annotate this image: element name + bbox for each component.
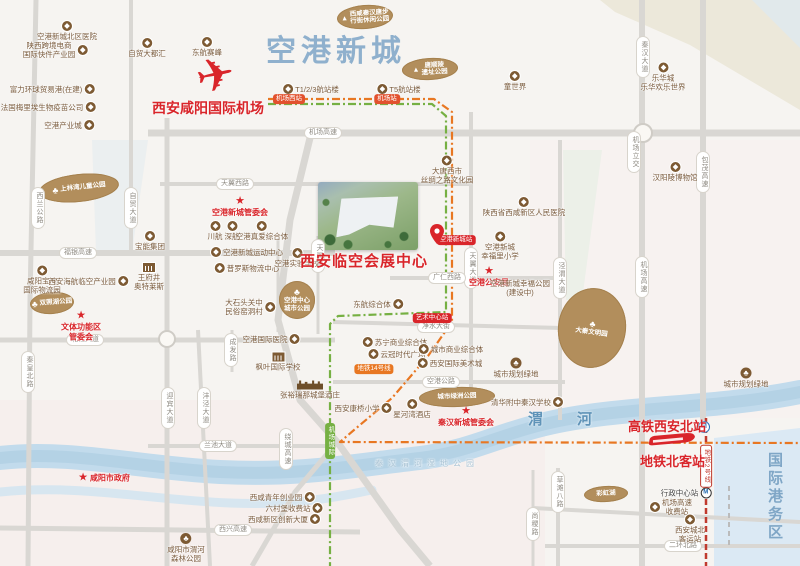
poi-icon: [210, 221, 220, 231]
map-poi: 空港新城运动中心: [211, 247, 283, 257]
road-label: 沣泾大道: [197, 387, 211, 429]
poi-icon: [84, 120, 94, 130]
building-icon: [143, 263, 155, 272]
map-poi: 空港真爱综合体: [236, 221, 289, 241]
poi-label: 空港真爱综合体: [236, 232, 289, 241]
map-poi: 西安康桥小学: [335, 403, 392, 413]
poi-icon: [62, 21, 72, 31]
map-poi: ★文体功能区 管委会: [61, 310, 101, 341]
poi-label: 城市商业综合体: [431, 345, 484, 354]
map-poi: 西咸青年创业园: [250, 492, 315, 502]
map-poi: 空港产业城: [44, 120, 94, 130]
poi-icon: [407, 399, 417, 409]
tree-icon: ♣: [741, 368, 752, 379]
venue-render-photo: [318, 182, 418, 250]
map-poi: 汉阳陵博物馆: [653, 162, 698, 182]
poi-icon: [310, 514, 320, 524]
star-icon: ★: [484, 266, 494, 277]
poi-icon: [215, 263, 225, 273]
poi-label: 秦汉渭河湿地公园: [375, 459, 479, 469]
poi-label: 王府井 奥特莱斯: [134, 273, 164, 291]
poi-icon: [419, 344, 429, 354]
poi-icon: [202, 37, 212, 47]
road-label: 福银高速: [59, 247, 97, 259]
poi-label: 大石头关中 民俗窑洞村: [225, 298, 263, 316]
map-poi: 宝能集团: [135, 231, 165, 251]
map-poi: 空港新城北区医院: [37, 21, 97, 41]
poi-label: 富力环球贸易港(在建): [10, 85, 83, 94]
road-label: 空港公路: [422, 376, 460, 388]
poi-icon: [650, 502, 660, 512]
venue-label: 西安临空会展中心: [300, 250, 428, 271]
map-poi: 六村堡收费站: [266, 503, 323, 513]
map-poi: 苏宁商业综合体: [363, 337, 428, 347]
road-label: 西兴高速: [214, 524, 252, 536]
tree-icon: ♣: [181, 533, 192, 544]
poi-label: 咸阳市政府: [90, 473, 130, 483]
poi-icon: [658, 63, 668, 73]
map-poi: 张裕瑞那城堡酒庄: [280, 381, 340, 400]
poi-label: 童世界: [504, 82, 527, 91]
road-label: 机场高速: [635, 256, 649, 298]
poi-label: 空港产业城: [44, 121, 82, 130]
map-poi: 西安海航临空产业园: [48, 276, 128, 286]
road-label: 包茂高速: [696, 151, 710, 193]
map-poi: 西安城北 客运站: [675, 515, 705, 544]
map-poi: 陕西省西咸新区人民医院: [483, 197, 566, 217]
poi-label: 空港新城北区医院: [37, 32, 97, 41]
poi-icon: [211, 247, 221, 257]
poi-icon: [519, 197, 529, 207]
map-poi: 秦汉渭河湿地公园: [375, 459, 479, 469]
poi-label: 陕西省西咸新区人民医院: [483, 208, 566, 217]
poi-icon: [265, 302, 275, 312]
poi-label: 普罗斯物流中心: [227, 264, 280, 273]
poi-label: 自贸大都汇: [128, 49, 166, 58]
poi-icon: [283, 84, 293, 94]
map-poi: ♣城市规划绿地: [494, 358, 539, 379]
map-poi: 西安国际美术城: [418, 358, 483, 368]
poi-icon: [418, 358, 428, 368]
poi-icon: [37, 266, 47, 276]
map-poi: 童世界: [504, 71, 527, 91]
poi-label: 宝能集团: [135, 242, 165, 251]
poi-icon: [670, 162, 680, 172]
poi-icon: [382, 403, 392, 413]
road-label: 成发路: [224, 333, 238, 367]
airport-label: 西安咸阳国际机场: [152, 98, 264, 118]
poi-label: 西安城北 客运站: [675, 526, 705, 544]
poi-label: 张裕瑞那城堡酒庄: [280, 391, 340, 400]
castle-icon: [297, 381, 323, 390]
location-pin-icon: [430, 224, 444, 244]
poi-label: 秦汉新城管委会: [438, 418, 494, 428]
poi-icon: [377, 84, 387, 94]
poi-icon: [393, 299, 403, 309]
map-poi: 空港新城幸福公园 (建设中): [490, 279, 550, 297]
poi-label: 空港新城管委会: [212, 208, 268, 218]
road-label: 机场高速: [304, 127, 342, 139]
poi-icon: [142, 38, 152, 48]
map-poi: ♣城市规划绿地: [724, 368, 769, 389]
poi-label: 陕西跨境电商 国际快件产业园: [23, 41, 76, 59]
poi-icon: [495, 232, 505, 242]
map-poi: 陕西跨境电商 国际快件产业园: [23, 41, 88, 59]
poi-label: 法国梅里埃生物疫苗公司: [1, 103, 84, 112]
poi-icon: [553, 397, 563, 407]
map-poi: ★咸阳市政府: [78, 473, 130, 484]
tree-icon: ♣: [511, 358, 522, 369]
map-poi: 清华附中秦汉学校: [491, 397, 563, 407]
map-poi: 城市商业综合体: [419, 344, 484, 354]
map-poi: 枫叶国际学校: [256, 353, 301, 372]
poi-icon: [145, 231, 155, 241]
poi-icon: [442, 156, 452, 166]
road-label: 广仁西路: [428, 272, 466, 284]
poi-icon: [257, 221, 267, 231]
map-poi: 行政中心站M: [661, 488, 712, 499]
road-label: 尚稷路: [526, 507, 540, 541]
poi-label: 六村堡收费站: [266, 504, 311, 513]
poi-label: 城市规划绿地: [494, 370, 539, 379]
poi-label: 行政中心站: [661, 489, 699, 498]
poi-icon: [313, 503, 323, 513]
poi-label: T1/2/3航站楼: [295, 85, 339, 94]
map-poi: 大唐西市 丝绸之路文化园: [421, 156, 474, 185]
map-poi: 富力环球贸易港(在建): [10, 84, 95, 94]
map-poi: 法国梅里埃生物疫苗公司: [1, 102, 96, 112]
poi-label: 西咸新区创新大厦: [248, 515, 308, 524]
poi-icon: [685, 515, 695, 525]
map-poi: 空港国际医院: [243, 334, 300, 344]
station-label: 机场西站: [273, 94, 305, 104]
map-poi: 空港新城 幸福里小学: [481, 232, 519, 261]
map-poi: 川航: [208, 221, 223, 241]
metro-station-label: 地铁北客站: [640, 451, 705, 470]
poi-label: 西咸青年创业园: [250, 493, 303, 502]
road-label: 草滩八路: [551, 471, 565, 513]
poi-icon: [363, 337, 373, 347]
map-poi: 机场高速 收费站: [650, 498, 692, 516]
map-poi: ♣咸阳市渭河 森林公园: [167, 533, 205, 563]
poi-label: 大唐西市 丝绸之路文化园: [421, 167, 474, 185]
poi-label: 机场高速 收费站: [662, 498, 692, 516]
metro-icon: M: [700, 488, 711, 499]
poi-label: 星河湾酒店: [393, 410, 431, 419]
station-label: 地铁14号线: [354, 364, 393, 374]
hsr-station-label: 高铁西安北站: [628, 416, 706, 435]
district-title: 空港新城: [266, 26, 406, 70]
poi-label: 汉阳陵博物馆: [653, 173, 698, 182]
map-poi: 大石头关中 民俗窑洞村: [225, 298, 275, 316]
poi-label: 西安康桥小学: [335, 404, 380, 413]
map-poi: 自贸大都汇: [128, 38, 166, 58]
poi-label: 枫叶国际学校: [256, 363, 301, 372]
map-poi: 王府井 奥特莱斯: [134, 263, 164, 291]
poi-label: 城市规划绿地: [724, 380, 769, 389]
road-label: 泾渭大道: [553, 257, 567, 299]
station-label: 艺术中心站: [413, 313, 452, 323]
map-poi: T1/2/3航站楼: [283, 84, 339, 94]
poi-label: 西安海航临空产业园: [48, 277, 116, 286]
road-label: 秦皇北路: [21, 351, 35, 393]
poi-label: 清华附中秦汉学校: [491, 398, 551, 407]
star-icon: ★: [461, 406, 471, 417]
map-poi: 普罗斯物流中心: [215, 263, 280, 273]
poi-label: 西安国际美术城: [430, 359, 483, 368]
star-icon: ★: [235, 196, 245, 207]
poi-label: T5航站楼: [389, 85, 420, 94]
poi-icon: [304, 492, 314, 502]
map-poi: 星河湾酒店: [393, 399, 431, 419]
poi-label: 乐华城 乐华欢乐世界: [641, 74, 686, 92]
station-label: 机场城际: [325, 423, 335, 459]
poi-icon: [290, 334, 300, 344]
map-poi: ★空港新城管委会: [212, 196, 268, 218]
poi-label: 咸阳市渭河 森林公园: [167, 545, 205, 563]
poi-label: 东航综合体: [353, 300, 391, 309]
poi-label: 文体功能区 管委会: [61, 322, 101, 341]
poi-label: 川航: [208, 232, 223, 241]
poi-label: 空港新城幸福公园 (建设中): [490, 279, 550, 297]
poi-icon: [369, 349, 379, 359]
star-icon: ★: [78, 473, 88, 484]
label-layer: 空港新城北区医院陕西跨境电商 国际快件产业园自贸大都汇东航赛峰富力环球贸易港(在…: [0, 0, 800, 566]
road-label: 绕城高速: [279, 428, 293, 470]
road-label: 自贸大道: [124, 187, 138, 229]
poi-label: 空港新城 幸福里小学: [481, 243, 519, 261]
building-icon: [272, 353, 284, 362]
map-poi: 西咸新区创新大厦: [248, 514, 320, 524]
poi-icon: [118, 276, 128, 286]
road-label: 兰池大道: [199, 440, 237, 452]
map-poi: 乐华城 乐华欢乐世界: [641, 63, 686, 92]
road-label: 天翼西路: [216, 178, 254, 190]
road-label: 机场立交: [627, 131, 641, 173]
map-poi: ★秦汉新城管委会: [438, 406, 494, 428]
map-canvas[interactable]: ▲西咸秦汉唐步 行街休闲公园▲唐顺陵 遗址公园♣上林湾儿童公园♣双照湖公园♣空港…: [0, 0, 800, 566]
poi-icon: [84, 84, 94, 94]
river-name-label: 渭河: [528, 408, 626, 429]
poi-icon: [510, 71, 520, 81]
road-label: 迎宾大道: [161, 387, 175, 429]
poi-icon: [77, 45, 87, 55]
road-label: 西兰公路: [31, 187, 45, 229]
map-poi: T5航站楼: [377, 84, 420, 94]
star-icon: ★: [76, 310, 86, 321]
map-poi: 东航综合体: [353, 299, 403, 309]
poi-icon: [85, 102, 95, 112]
poi-label: 空港国际医院: [243, 335, 288, 344]
port-zone-label: 国际港务区: [764, 452, 785, 542]
station-label: 机场站: [374, 94, 400, 104]
